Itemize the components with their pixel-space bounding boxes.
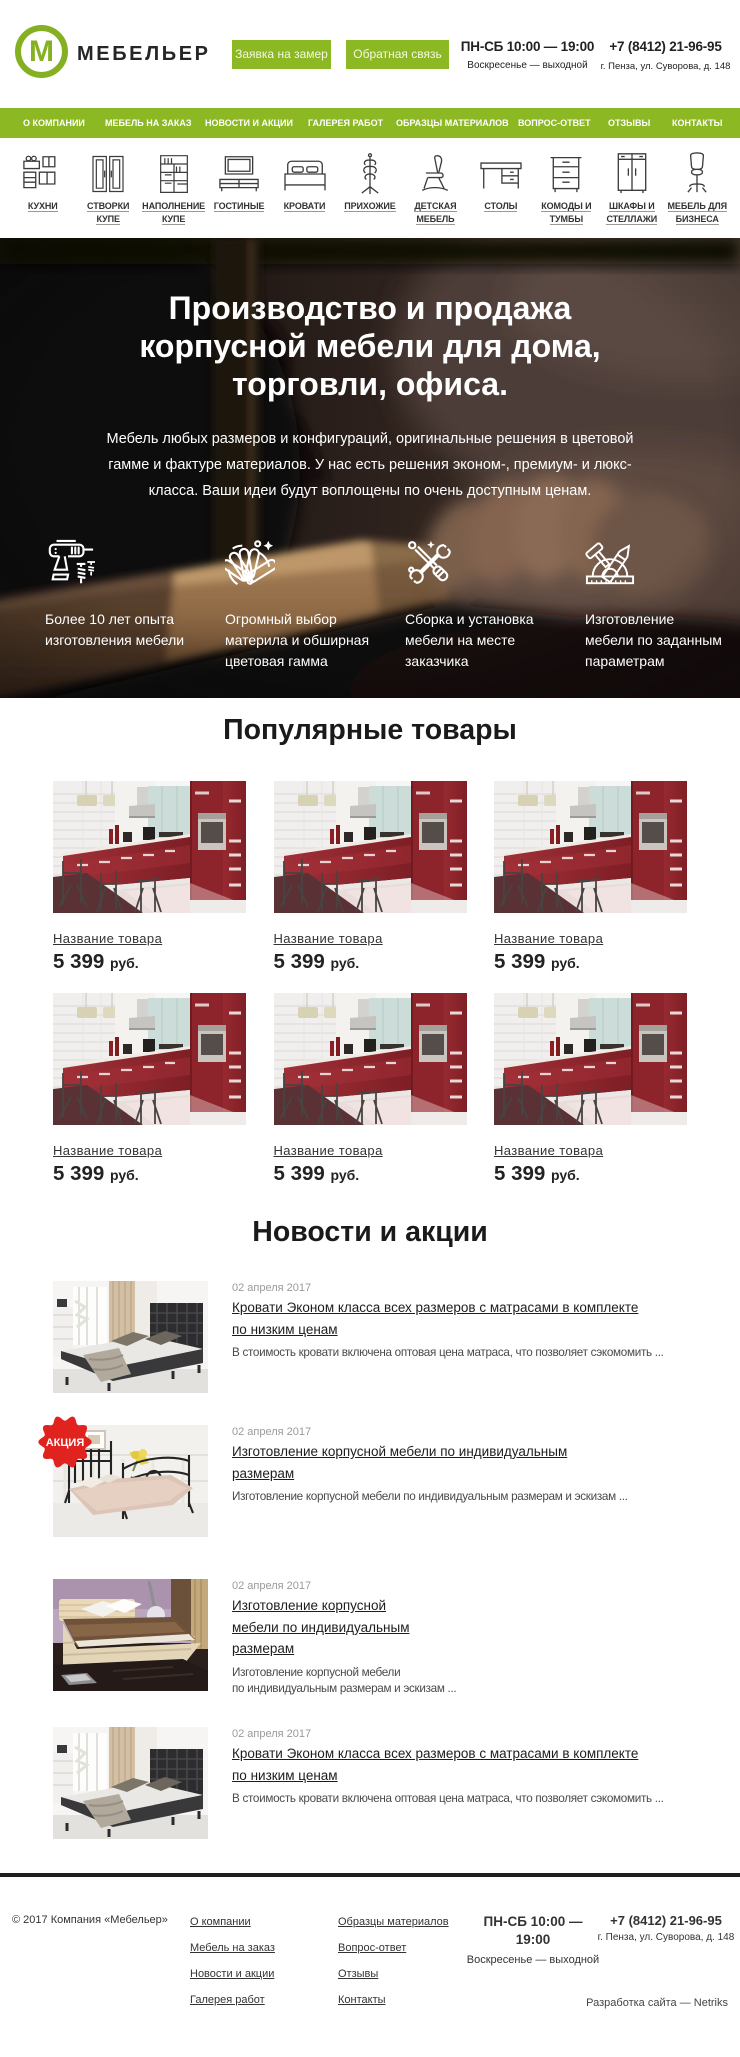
svg-text:АКЦИЯ: АКЦИЯ [46, 1437, 85, 1449]
